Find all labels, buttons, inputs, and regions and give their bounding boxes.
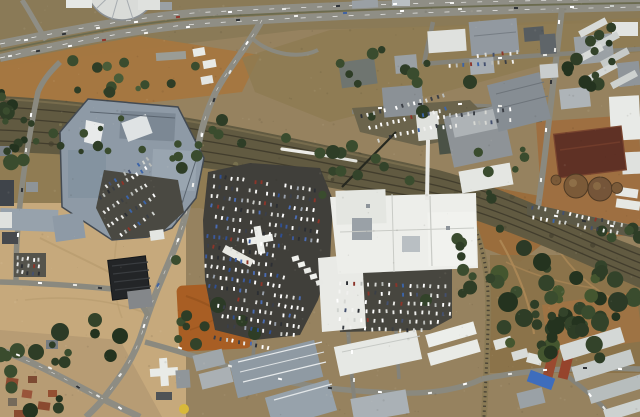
west-small-lot (14, 253, 46, 277)
tree (88, 313, 102, 327)
car (314, 198, 316, 202)
car (540, 217, 542, 221)
car (381, 292, 383, 296)
car (261, 345, 263, 349)
car (550, 80, 552, 84)
car (395, 319, 397, 323)
car (259, 309, 261, 313)
car (540, 178, 542, 182)
car (261, 282, 263, 286)
car (407, 310, 409, 314)
car (26, 271, 28, 275)
car (360, 282, 362, 286)
car (570, 6, 574, 8)
car (223, 196, 225, 200)
car (225, 186, 227, 190)
car (467, 112, 469, 116)
car (339, 317, 341, 321)
car (246, 308, 248, 312)
car (259, 211, 261, 215)
car (344, 300, 346, 304)
car (220, 276, 222, 280)
car (241, 307, 243, 311)
car (249, 188, 251, 192)
building (593, 182, 601, 190)
car (240, 260, 242, 264)
satellite-image (0, 0, 640, 417)
car (228, 11, 232, 13)
car (262, 329, 264, 333)
car (213, 235, 215, 239)
house-roof (21, 389, 32, 398)
car (264, 273, 266, 277)
car (351, 308, 353, 312)
car (236, 19, 240, 21)
car (343, 12, 347, 14)
car (257, 291, 259, 295)
car (282, 313, 284, 317)
left-edge-building (0, 180, 14, 206)
car (473, 111, 475, 115)
car (497, 108, 499, 112)
dark-sheds (156, 392, 172, 400)
car (367, 283, 369, 287)
car (278, 244, 280, 248)
car (421, 328, 423, 332)
car (211, 255, 213, 259)
building (569, 179, 577, 187)
car (252, 310, 254, 314)
car (236, 188, 238, 192)
car (378, 327, 380, 331)
tree (516, 240, 532, 256)
thatched-dome (588, 177, 612, 201)
car (250, 220, 252, 224)
car (402, 284, 404, 288)
car (410, 292, 412, 296)
car (462, 63, 464, 67)
car (282, 8, 286, 10)
car (393, 3, 397, 5)
car (259, 201, 261, 205)
car (250, 342, 252, 346)
tree (326, 145, 340, 159)
car (236, 279, 238, 283)
tree (498, 292, 518, 312)
rooftop-unit (366, 204, 370, 208)
car (498, 105, 502, 107)
car (601, 218, 603, 222)
house-roof (48, 390, 57, 397)
car (378, 107, 382, 109)
building (160, 2, 172, 10)
car (381, 282, 383, 286)
car (418, 103, 422, 105)
car (336, 299, 338, 303)
car (491, 61, 493, 65)
car (266, 192, 268, 196)
tree (575, 323, 589, 337)
car (247, 199, 249, 203)
tree (51, 323, 69, 341)
car (485, 110, 487, 114)
car (239, 289, 241, 293)
car (314, 189, 316, 193)
tree (515, 309, 533, 327)
car (290, 194, 292, 198)
block-building (540, 63, 559, 78)
car (484, 62, 486, 66)
car (246, 260, 248, 264)
car (265, 262, 267, 266)
car (176, 16, 180, 18)
car (293, 333, 295, 337)
car (37, 258, 39, 262)
car (235, 258, 237, 262)
gray-annex (175, 370, 190, 389)
car (497, 61, 499, 65)
rooftop-unit (446, 226, 450, 230)
car (231, 187, 233, 191)
car (17, 256, 19, 260)
car (406, 328, 408, 332)
car (33, 258, 35, 262)
car (428, 392, 432, 394)
tree (281, 133, 291, 143)
screenshot (0, 0, 640, 417)
car (231, 277, 233, 281)
whitemall-gray-court (402, 236, 420, 252)
tree (533, 253, 551, 271)
car (610, 229, 612, 233)
car (347, 318, 349, 322)
building (138, 0, 160, 10)
car (242, 239, 244, 243)
car (346, 281, 348, 285)
tree (190, 338, 202, 350)
block-building (559, 86, 591, 109)
car (244, 326, 246, 330)
car (400, 310, 402, 314)
car (73, 284, 77, 286)
car (274, 322, 276, 326)
tree (591, 313, 609, 331)
car (233, 228, 235, 232)
car (385, 309, 387, 313)
car (312, 218, 314, 222)
car (247, 269, 249, 273)
thatched-dome (612, 183, 623, 194)
car (423, 284, 425, 288)
car (416, 293, 418, 297)
car (245, 289, 247, 293)
car (392, 327, 394, 331)
building (392, 0, 410, 6)
car (415, 320, 417, 324)
yellow-structure (179, 404, 189, 414)
car (381, 319, 383, 323)
car (304, 228, 306, 232)
car (413, 328, 415, 332)
car (385, 327, 387, 331)
car (435, 303, 437, 307)
car (220, 175, 222, 179)
car (618, 368, 622, 370)
car (498, 57, 502, 59)
car (436, 312, 438, 316)
car (408, 302, 410, 306)
car (509, 118, 511, 122)
car (366, 309, 368, 313)
car (414, 302, 416, 306)
car (543, 369, 547, 371)
car (286, 323, 288, 327)
building (352, 0, 378, 9)
car (339, 290, 341, 294)
car (399, 329, 401, 333)
car (257, 319, 259, 323)
car (249, 239, 251, 243)
car (247, 209, 249, 213)
tree (112, 328, 128, 344)
car (264, 310, 266, 314)
car (532, 216, 534, 220)
car (252, 210, 254, 214)
car (243, 298, 245, 302)
car (254, 240, 256, 244)
car (233, 287, 235, 291)
car (353, 290, 355, 294)
car (430, 320, 432, 324)
car (516, 50, 518, 54)
car (206, 274, 208, 278)
car (38, 282, 42, 284)
car (353, 378, 355, 382)
car (378, 391, 382, 393)
car (470, 62, 472, 66)
car (416, 284, 418, 288)
car (378, 309, 380, 313)
car (360, 291, 362, 295)
car (368, 292, 370, 296)
block-building (427, 29, 466, 54)
left-edge-building (26, 182, 38, 192)
car (449, 312, 451, 316)
car (205, 264, 207, 268)
car (245, 229, 247, 233)
car (254, 180, 256, 184)
car (395, 283, 397, 287)
car (373, 319, 375, 323)
graymall-west-annex (52, 212, 85, 242)
car (458, 103, 462, 105)
car (239, 218, 241, 222)
car (225, 277, 227, 281)
white-kiosk (149, 229, 164, 241)
car (306, 217, 308, 221)
car (437, 285, 439, 289)
car (436, 294, 438, 298)
car (449, 64, 451, 68)
car (21, 188, 23, 192)
car (554, 48, 556, 52)
car (427, 302, 429, 306)
car (250, 318, 252, 322)
car (558, 20, 560, 24)
car (269, 223, 271, 227)
car (583, 367, 587, 369)
car (543, 54, 547, 56)
car (260, 180, 262, 184)
building (66, 0, 92, 8)
car (238, 316, 240, 320)
car (392, 310, 394, 314)
left-edge-building (0, 212, 12, 228)
car (414, 311, 416, 315)
block-building (469, 57, 494, 75)
car (351, 350, 353, 354)
car (291, 226, 293, 230)
tree (28, 344, 44, 360)
car (353, 282, 355, 286)
car (444, 284, 446, 288)
car (299, 296, 301, 300)
car (354, 318, 356, 322)
car (242, 249, 244, 253)
car (226, 338, 228, 342)
car (280, 223, 282, 227)
car (205, 254, 207, 258)
car (215, 225, 217, 229)
car (610, 5, 614, 7)
thatched-dome (564, 174, 588, 198)
car (276, 204, 278, 208)
car (280, 332, 282, 336)
car (445, 293, 447, 297)
car (277, 213, 279, 217)
car (400, 10, 404, 12)
car (428, 311, 430, 315)
arena (554, 126, 627, 178)
car (260, 242, 262, 246)
car (371, 328, 373, 332)
car (233, 315, 235, 319)
car (243, 341, 245, 345)
whitemall-gray-court (352, 218, 372, 240)
tree (171, 255, 181, 265)
left-edge-building (2, 232, 18, 244)
car (17, 233, 19, 237)
pedestrian-bridge-white (427, 140, 428, 200)
car (309, 188, 311, 192)
house-roof (38, 401, 51, 411)
car (349, 326, 351, 330)
house-roof (8, 398, 17, 406)
car (260, 300, 262, 304)
car (493, 53, 495, 57)
car (402, 293, 404, 297)
car (273, 192, 275, 196)
car (270, 203, 272, 207)
tree (608, 292, 628, 312)
car (430, 293, 432, 297)
car (509, 52, 511, 56)
car (218, 236, 220, 240)
tree (463, 75, 477, 89)
car (367, 318, 369, 322)
car (221, 286, 223, 290)
car (266, 302, 268, 306)
car (241, 269, 243, 273)
car (545, 128, 547, 132)
car (227, 324, 229, 328)
car (421, 310, 423, 314)
car (342, 326, 344, 330)
car (207, 244, 209, 248)
car (253, 260, 255, 264)
car (226, 287, 228, 291)
car (336, 5, 340, 7)
car (450, 2, 454, 4)
car (455, 124, 457, 128)
car (238, 340, 240, 344)
car (223, 256, 225, 260)
car (365, 300, 367, 304)
car (292, 236, 294, 240)
car (290, 185, 292, 189)
car (337, 308, 339, 312)
car (211, 194, 213, 198)
car (456, 64, 458, 68)
car (284, 246, 286, 250)
car (374, 283, 376, 287)
tower-annex (127, 289, 153, 310)
car (274, 293, 276, 297)
car (339, 282, 341, 286)
house-roof (28, 376, 37, 383)
car (379, 300, 381, 304)
car (514, 7, 518, 9)
tree (216, 114, 228, 126)
car (217, 256, 219, 260)
car (257, 328, 259, 332)
car (388, 283, 390, 287)
car (294, 15, 298, 17)
car (186, 26, 190, 28)
car (249, 250, 251, 254)
car (258, 272, 260, 276)
car (253, 271, 255, 275)
